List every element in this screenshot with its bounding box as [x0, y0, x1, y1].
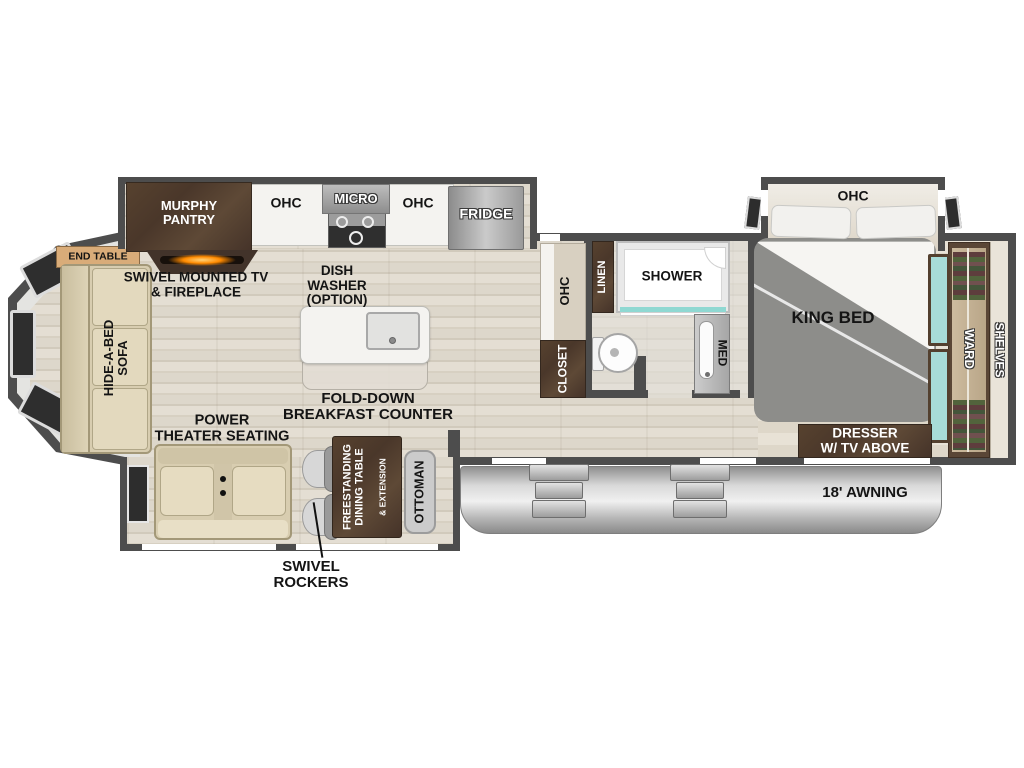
toilet-flush-dot — [610, 348, 619, 357]
theater-cushion-left — [160, 466, 214, 516]
ottoman-label: OTTOMAN — [413, 461, 427, 524]
bay-window-center — [10, 310, 36, 378]
top-wall-window — [540, 234, 560, 241]
dishwasher-label: DISH WASHER (OPTION) — [307, 264, 368, 308]
theater-cupholder-2 — [220, 490, 226, 496]
theater-cupholder-1 — [220, 476, 226, 482]
med-sink — [699, 321, 714, 379]
bath-ohc-label: OHC — [558, 277, 572, 306]
closet-label: CLOSET — [557, 345, 570, 394]
wardrobe-clothes-bottom — [953, 400, 985, 450]
dining-table-label-ext: & EXTENSION — [378, 444, 387, 530]
entry-steps-left — [529, 464, 587, 520]
toilet-partition-wall — [634, 356, 646, 398]
kitchen-ohc-right-label: OHC — [402, 195, 433, 210]
king-bed-blanket — [754, 238, 936, 422]
med-label: MED — [716, 340, 729, 367]
micro-label: MICRO — [334, 192, 377, 206]
fold-down-counter-extension — [302, 362, 428, 390]
king-bed-label: KING BED — [791, 309, 874, 327]
pillow-left — [770, 205, 851, 240]
island-faucet-dot — [389, 337, 396, 344]
floorplan-canvas: OHC CLOSET LINEN SHOWER MED END TABLE HI… — [0, 0, 1024, 768]
living-slide-window-strip-right — [296, 544, 438, 550]
bedroom-window-strip — [804, 458, 930, 464]
med-faucet-dot — [705, 372, 710, 377]
pillow-right — [855, 205, 936, 240]
theater-label: POWER THEATER SEATING — [155, 413, 290, 444]
shelves-label: SHELVES — [993, 322, 1006, 377]
sofa-label: HIDE-A-BED SOFA — [102, 320, 130, 397]
theater-seating — [154, 444, 292, 540]
theater-cushion-right — [232, 466, 286, 516]
stove-burner-left — [336, 216, 348, 228]
wardrobe-mirror-door-top — [928, 254, 950, 346]
entry-steps-right — [670, 464, 728, 520]
stove-burner-front — [349, 231, 363, 245]
dining-table-label: FREESTANDING DINING TABLE & EXTENSION — [331, 444, 400, 530]
wardrobe-clothes-top — [953, 252, 985, 300]
awning-label: 18' AWNING — [822, 485, 908, 501]
shower-label: SHOWER — [642, 270, 703, 285]
ward-label: WARD — [962, 329, 976, 369]
king-bed — [754, 238, 936, 422]
bedroom-ohc-label: OHC — [837, 188, 868, 203]
end-table-label: END TABLE — [68, 251, 127, 262]
fold-down-counter-label: FOLD-DOWN BREAKFAST COUNTER — [283, 391, 453, 423]
linen-label: LINEN — [597, 261, 609, 294]
island-sink — [366, 312, 420, 350]
stove-burner-right — [362, 216, 374, 228]
dining-table-label-main: FREESTANDING DINING TABLE — [343, 444, 367, 530]
fireplace-glow — [168, 254, 236, 266]
swivel-rockers-label: SWIVEL ROCKERS — [273, 559, 348, 591]
bed-slide-wallgap-left — [761, 190, 768, 216]
sofa-backrest — [62, 266, 90, 452]
theater-front-strip — [158, 520, 288, 538]
murphy-pantry-label: MURPHY PANTRY — [161, 199, 217, 227]
dresser-label: DRESSER W/ TV ABOVE — [821, 426, 910, 455]
tv-fireplace-label: SWIVEL MOUNTED TV & FIREPLACE — [124, 270, 269, 299]
kitchen-ohc-left-label: OHC — [270, 195, 301, 210]
theater-back-strip — [158, 448, 288, 464]
fridge-label: FRIDGE — [460, 206, 513, 221]
bed-slide-window-right — [943, 196, 962, 230]
bed-slide-wallgap-right — [938, 190, 945, 216]
sofa-cushion-bottom — [92, 388, 148, 450]
living-slide-window-strip-left — [142, 544, 276, 550]
living-slide-side-window — [127, 465, 149, 523]
